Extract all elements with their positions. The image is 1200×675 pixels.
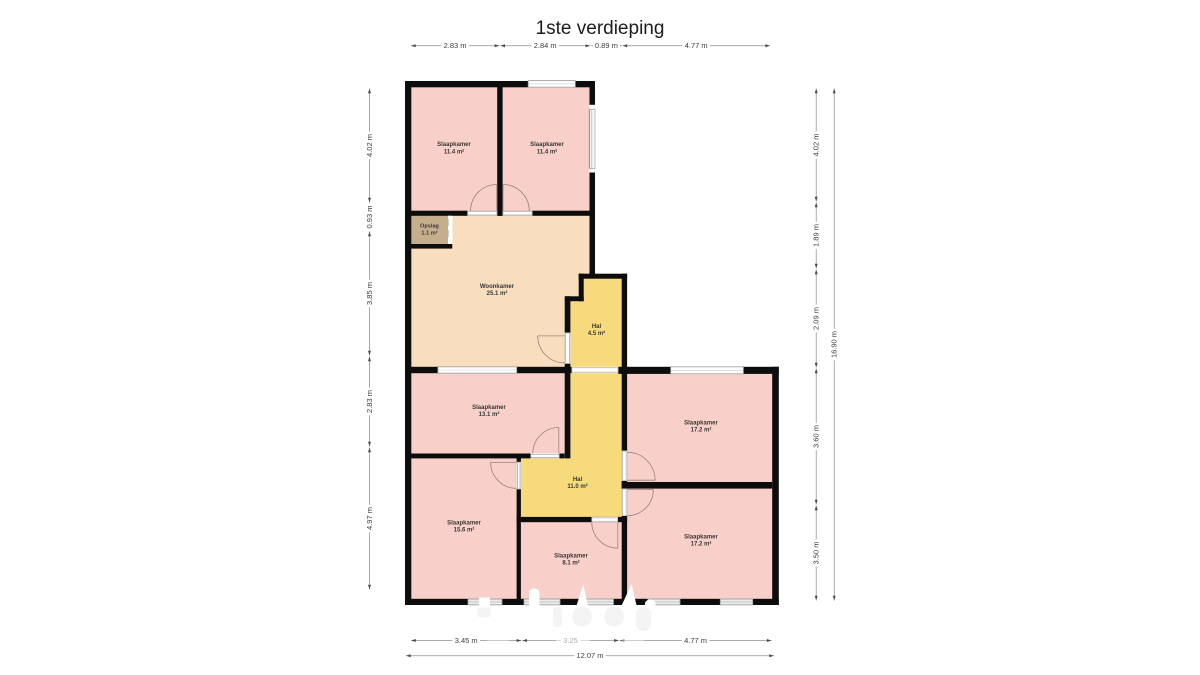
svg-text:4.5 m²: 4.5 m² [588, 330, 605, 337]
svg-text:11.0 m²: 11.0 m² [567, 483, 587, 490]
svg-text:1ste verdieping: 1ste verdieping [536, 18, 665, 39]
svg-text:3.50 m: 3.50 m [812, 542, 821, 565]
svg-text:25.1 m²: 25.1 m² [487, 290, 508, 297]
svg-text:2.09 m: 2.09 m [812, 307, 821, 330]
svg-text:17.2 m²: 17.2 m² [691, 427, 712, 434]
svg-text:Slaapkamer: Slaapkamer [447, 521, 481, 527]
svg-text:4.02 m: 4.02 m [365, 134, 374, 157]
svg-text:4.77 m: 4.77 m [684, 636, 707, 645]
svg-text:Slaapkamer: Slaapkamer [554, 554, 588, 560]
svg-text:2.83 m: 2.83 m [365, 390, 374, 413]
svg-text:Slaapkamer: Slaapkamer [437, 142, 471, 148]
svg-text:16.90 m: 16.90 m [830, 331, 839, 358]
svg-text:Slaapkamer: Slaapkamer [684, 535, 718, 541]
svg-text:Woonkamer: Woonkamer [480, 284, 515, 290]
svg-text:Slaapkamer: Slaapkamer [684, 421, 718, 427]
svg-text:13.1 m²: 13.1 m² [479, 411, 500, 418]
svg-text:0.89 m: 0.89 m [595, 41, 618, 50]
svg-text:4.97 m: 4.97 m [365, 507, 374, 530]
svg-text:3.85 m: 3.85 m [365, 282, 374, 305]
svg-text:4.02 m: 4.02 m [812, 134, 821, 157]
svg-text:11.4 m²: 11.4 m² [537, 148, 557, 155]
svg-text:17.2 m²: 17.2 m² [691, 541, 712, 548]
svg-text:Hal: Hal [573, 477, 583, 483]
svg-text:15.6 m²: 15.6 m² [454, 527, 475, 534]
svg-text:1.1 m²: 1.1 m² [421, 230, 437, 237]
svg-text:11.4 m²: 11.4 m² [444, 148, 464, 155]
svg-text:2.83 m: 2.83 m [444, 41, 467, 50]
svg-text:Opslag: Opslag [420, 224, 440, 230]
svg-text:4.77 m: 4.77 m [685, 41, 708, 50]
svg-text:3.60 m: 3.60 m [812, 425, 821, 448]
svg-text:Slaapkamer: Slaapkamer [530, 142, 564, 148]
svg-text:0.93 m: 0.93 m [365, 206, 374, 229]
svg-text:1.89 m: 1.89 m [812, 224, 821, 247]
svg-text:8.1 m²: 8.1 m² [562, 560, 579, 567]
svg-text:Slaapkamer: Slaapkamer [472, 405, 506, 411]
svg-text:3.45 m: 3.45 m [455, 636, 478, 645]
svg-text:12.07 m: 12.07 m [576, 651, 603, 660]
svg-text:2.84 m: 2.84 m [534, 41, 557, 50]
svg-text:Hal: Hal [592, 324, 602, 330]
